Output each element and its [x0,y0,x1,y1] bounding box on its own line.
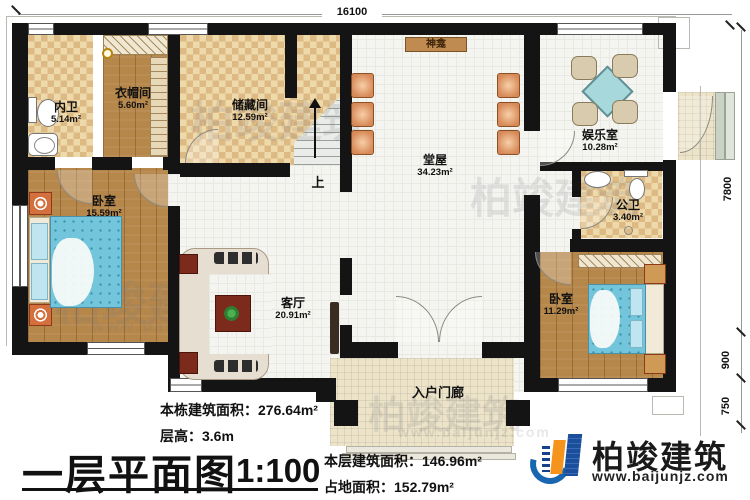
ceiling-lamp-icon [102,48,113,59]
building-area-text: 本栋建筑面积：276.64m² [160,400,318,420]
eave-line [6,16,7,346]
shrine: 神龛 [405,37,467,52]
bed-pillow [630,288,643,316]
room-label-keting: 客厅 20.91m² [263,296,323,322]
dining-chair [612,100,638,124]
side-table [179,352,198,374]
window [557,23,643,35]
room-area: 34.23m² [400,167,470,178]
wall [285,35,297,98]
floor-area-value: 146.96m² [422,453,482,469]
wall [12,35,28,342]
window [87,342,145,355]
hall-chair [497,130,520,155]
dining-chair [571,56,597,80]
side-porch-step [725,92,735,160]
bed-pillow [31,223,48,260]
brand-logo-icon [528,430,588,488]
room-area: 10.28m² [563,142,637,153]
bed-headboard [645,284,664,354]
room-name: 堂屋 [400,153,470,167]
plant-icon [224,306,239,321]
room-label-bedroom-left: 卧室 15.59m² [74,194,134,220]
footprint-value: 152.79m² [394,479,454,495]
toilet-icon [629,178,645,200]
room-name: 客厅 [263,296,323,310]
dimension-tick [725,20,735,30]
dimension-right-7800: 7800 [722,161,734,217]
floor-plan-page: 柏竣建筑 柏竣建筑 www.baijunjz.com 柏竣建筑 柏竣建筑 www… [0,0,750,500]
dimension-top: 16100 [322,6,382,18]
tv-cabinet [330,302,339,354]
side-table [179,254,198,274]
room-label-porch: 入户门廊 [393,385,483,401]
dimension-right-750: 750 [720,386,732,426]
wall [572,229,581,239]
building-area-label: 本栋建筑面积： [160,402,258,418]
porch-pillar [506,400,530,426]
wall [180,163,290,177]
logo-building-blue [564,434,582,476]
room-area: 12.59m² [215,112,285,123]
wall [168,35,180,157]
wall [570,239,676,252]
room-name: 储藏间 [215,98,285,112]
bed-pillow [630,320,643,348]
room-label-neiwei: 内卫 5.14m² [38,100,94,126]
exterior-pad [652,396,684,415]
brand-website: www.baijunjz.com [592,468,729,484]
window [148,23,208,35]
footprint-label: 占地面积： [324,479,394,495]
room-area: 11.29m² [531,306,591,317]
dimension-line-right [741,30,742,433]
toilet-icon [624,170,648,177]
hall-chair [497,102,520,127]
room-area: 5.60m² [100,100,166,111]
room-area: 3.40m² [596,212,660,223]
wall [572,171,581,197]
wall [663,23,676,92]
hall-chair [351,102,374,127]
plan-scale: 1:100 [236,452,320,490]
room-label-yimaojian: 衣帽间 5.60m² [100,86,166,112]
hall-chair [497,73,520,98]
stairs-up-label: 上 [304,172,332,188]
plan-title: 一层平面图 [22,441,237,500]
wall [92,157,132,170]
room-label-bedroom-right: 卧室 11.29m² [531,292,591,318]
building-area-value: 276.64m² [258,402,318,418]
hall-chair [351,73,374,98]
room-label-chucangjian: 储藏间 12.59m² [215,98,285,124]
room-name: 衣帽间 [100,86,166,100]
sofa-pillows [214,252,258,264]
nightstand [644,264,666,284]
room-area: 5.14m² [38,114,94,125]
dining-chair [612,54,638,78]
sofa-pillows [214,360,258,372]
bed-pillow [31,263,48,300]
dining-chair [572,102,598,126]
room-label-gongwei: 公卫 3.40m² [596,198,660,224]
logo-building-left [542,446,550,472]
room-name: 公卫 [596,198,660,212]
sink-icon [584,171,611,188]
room-name: 娱乐室 [563,128,637,142]
wall [340,342,398,358]
nightstand [29,304,52,326]
dimension-tick [11,5,21,15]
wall [340,258,352,295]
room-area: 20.91m² [263,310,323,321]
floor-area-label: 本层建筑面积： [324,453,422,469]
stairs-arrow [314,108,316,158]
room-name: 卧室 [74,194,134,208]
room-label-yuleshi: 娱乐室 10.28m² [563,128,637,154]
room-label-tangwu: 堂屋 34.23m² [400,153,470,179]
room-area: 15.59m² [74,208,134,219]
room-name: 卧室 [531,292,591,306]
stairs-arrow-head [309,98,321,108]
room-name: 内卫 [38,100,94,114]
window [12,205,28,287]
side-porch-step [715,92,725,160]
window [170,378,202,392]
wall [316,378,336,402]
footprint-text: 占地面积：152.79m² [324,477,454,497]
wall [12,157,55,170]
wall [163,157,180,170]
nightstand [644,354,666,374]
dimension-right-900: 900 [720,340,732,380]
hall-chair [351,130,374,155]
window [558,378,648,392]
room-name: 入户门廊 [412,385,464,400]
toilet-icon [28,97,37,123]
floor-area-text: 本层建筑面积：146.96m² [324,451,482,471]
title-underline [22,488,318,491]
nightstand [29,192,52,215]
wall [524,35,540,131]
window [28,23,54,35]
porch-pillar [334,400,358,426]
sink-basin-icon [34,137,55,154]
floor-drain-icon [624,226,633,235]
